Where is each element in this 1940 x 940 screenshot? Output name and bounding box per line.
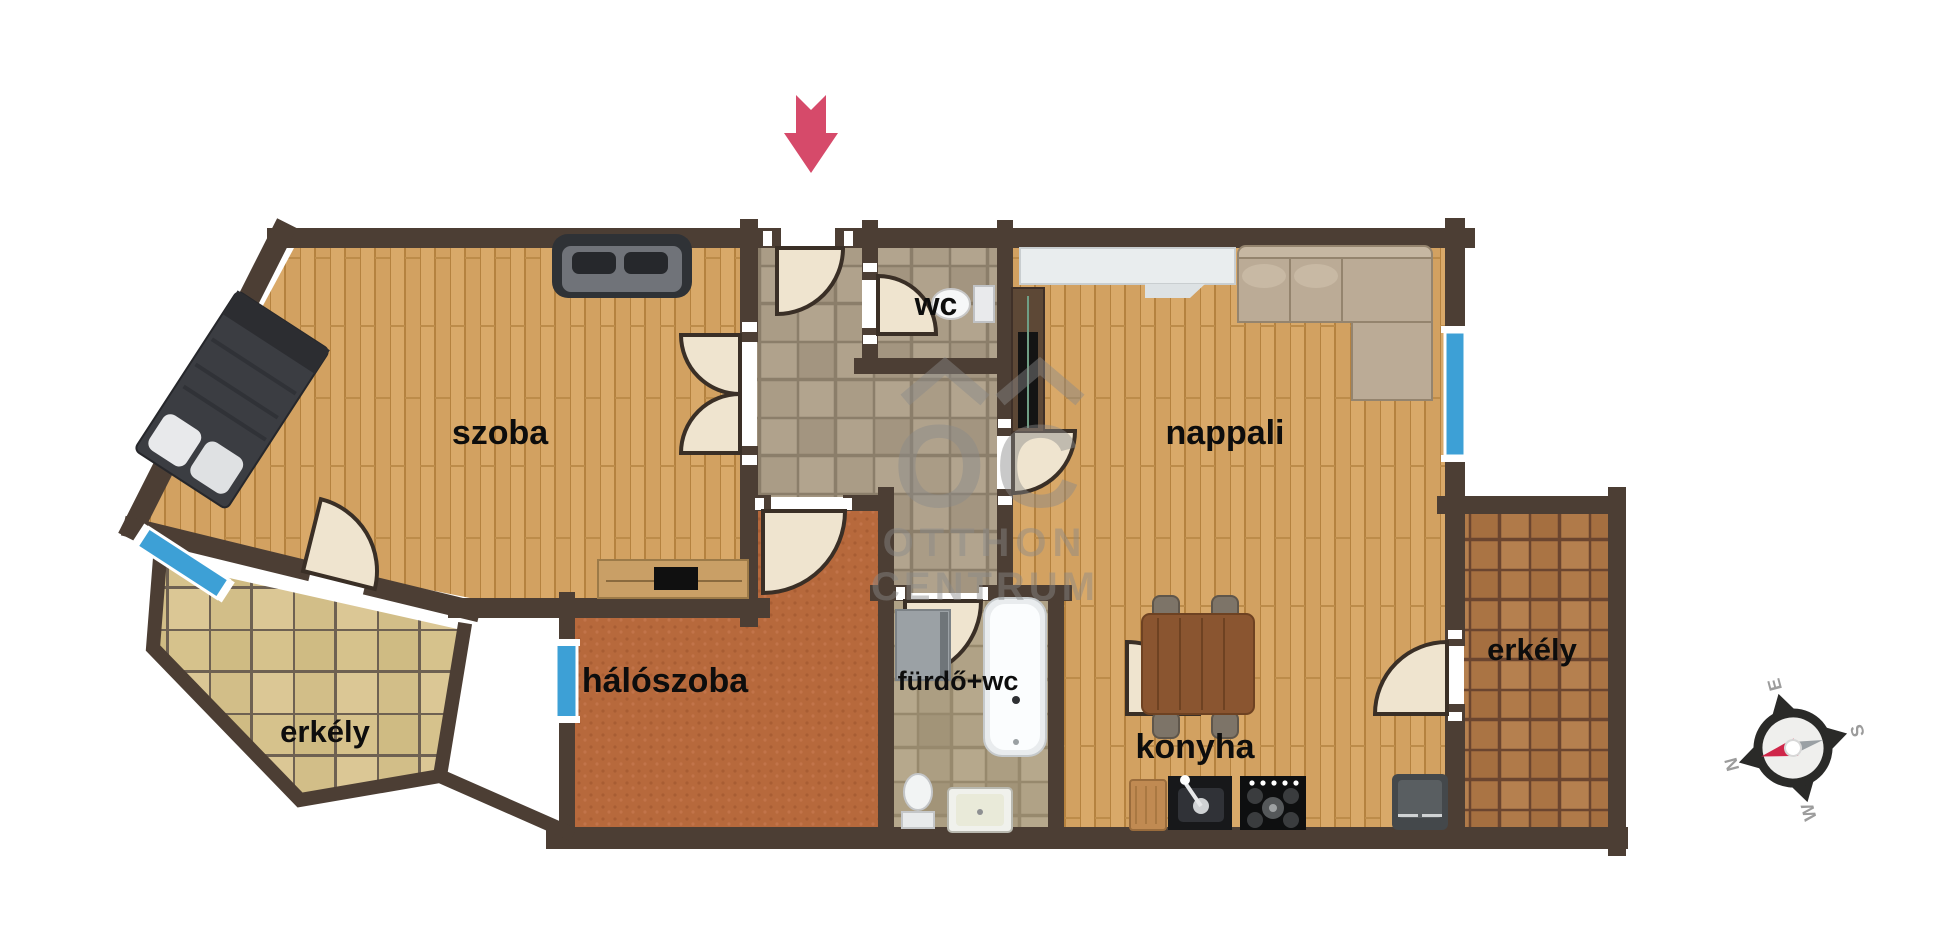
label-szoba: szoba xyxy=(452,414,549,452)
watermark-line1: OTTHON xyxy=(883,521,1088,565)
watermark-logo: OC xyxy=(894,401,1091,533)
label-konyha: konyha xyxy=(1135,728,1255,766)
label-furdo-wc: fürdő+wc xyxy=(898,666,1019,696)
label-nappali: nappali xyxy=(1165,414,1284,452)
floor-plan: OC OTTHON CENTRUM szoba nappali wc hálós… xyxy=(0,0,1940,940)
watermark-line2: CENTRUM xyxy=(871,565,1099,609)
floor-plan-page: OC OTTHON CENTRUM szoba nappali wc hálós… xyxy=(0,0,1940,940)
label-erkely-right: erkély xyxy=(1487,632,1577,667)
szoba-desk xyxy=(598,560,748,598)
bathroom-sink xyxy=(948,788,1012,832)
bathroom-toilet xyxy=(902,774,934,828)
balcony-right-floor xyxy=(1464,514,1608,829)
label-haloszoba: hálószoba xyxy=(582,662,749,700)
label-erkely-left: erkély xyxy=(280,714,370,749)
szoba-sofa xyxy=(552,234,692,298)
nappali-window xyxy=(1441,326,1469,462)
label-wc: wc xyxy=(914,286,958,322)
watermark: OC OTTHON CENTRUM xyxy=(871,366,1099,609)
kitchen-counter xyxy=(1130,774,1448,830)
bedroom-window xyxy=(553,639,580,723)
